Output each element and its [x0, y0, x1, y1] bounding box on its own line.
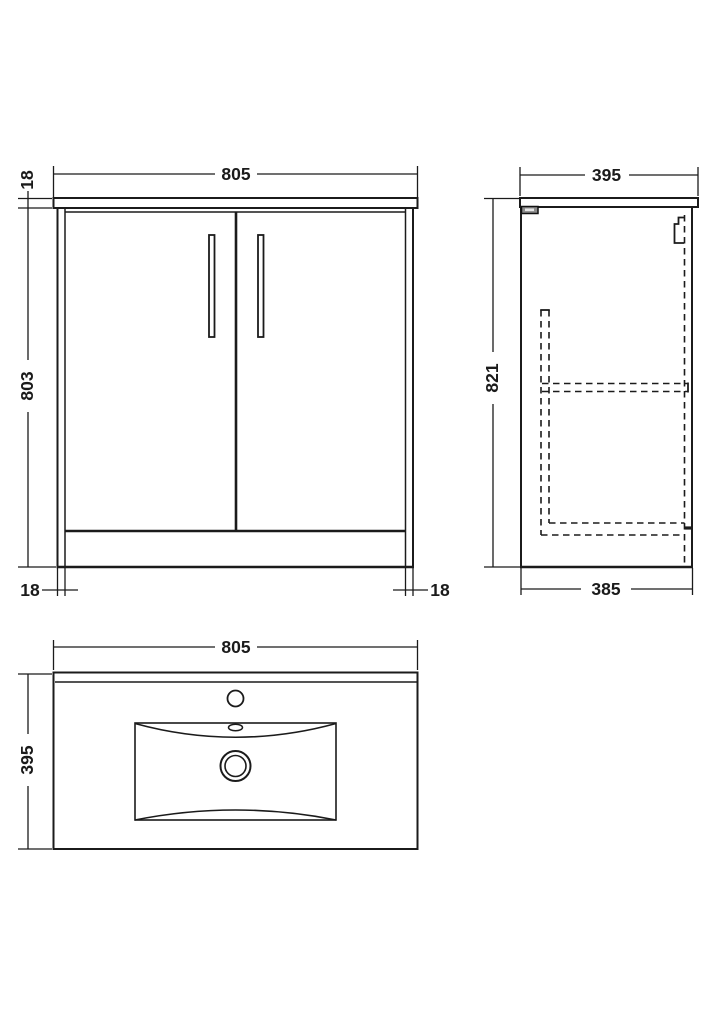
front-right-panel-label: 18 [430, 580, 450, 600]
side-panel-outline [520, 207, 693, 567]
hidden-middle-shelf [542, 384, 688, 392]
side-view: 395 821 385 [482, 165, 698, 599]
technical-drawing-canvas: 805 18 803 18 18 [0, 0, 724, 1024]
left-door-handle-icon [209, 235, 215, 337]
front-worktop [54, 198, 418, 208]
drawing-page: 805 18 803 18 18 [0, 0, 724, 1024]
front-cabinet-height-label: 803 [17, 371, 37, 400]
hinge-profile-icon [675, 218, 685, 244]
right-door-handle-icon [258, 235, 264, 337]
side-depth-label: 395 [592, 165, 621, 185]
front-bottom-dimensions [42, 568, 428, 596]
overflow-slot-icon [229, 724, 243, 730]
fixing-bracket-icon [522, 207, 539, 214]
tap-hole-icon [228, 691, 244, 707]
front-width-label: 805 [221, 164, 250, 184]
front-left-panel-label: 18 [20, 580, 40, 600]
basin-depth-label: 395 [17, 745, 37, 774]
side-height-label: 821 [482, 363, 502, 392]
side-worktop [520, 198, 698, 207]
front-view: 805 18 803 18 18 [17, 164, 450, 600]
basin-bowl [135, 723, 336, 820]
hidden-internal-channel [541, 310, 685, 535]
front-worktop-thickness-label: 18 [17, 170, 37, 190]
basin-plan-view: 805 395 [17, 637, 418, 849]
front-doors [65, 212, 405, 531]
side-body-depth-label: 385 [591, 579, 620, 599]
basin-width-label: 805 [221, 637, 250, 657]
